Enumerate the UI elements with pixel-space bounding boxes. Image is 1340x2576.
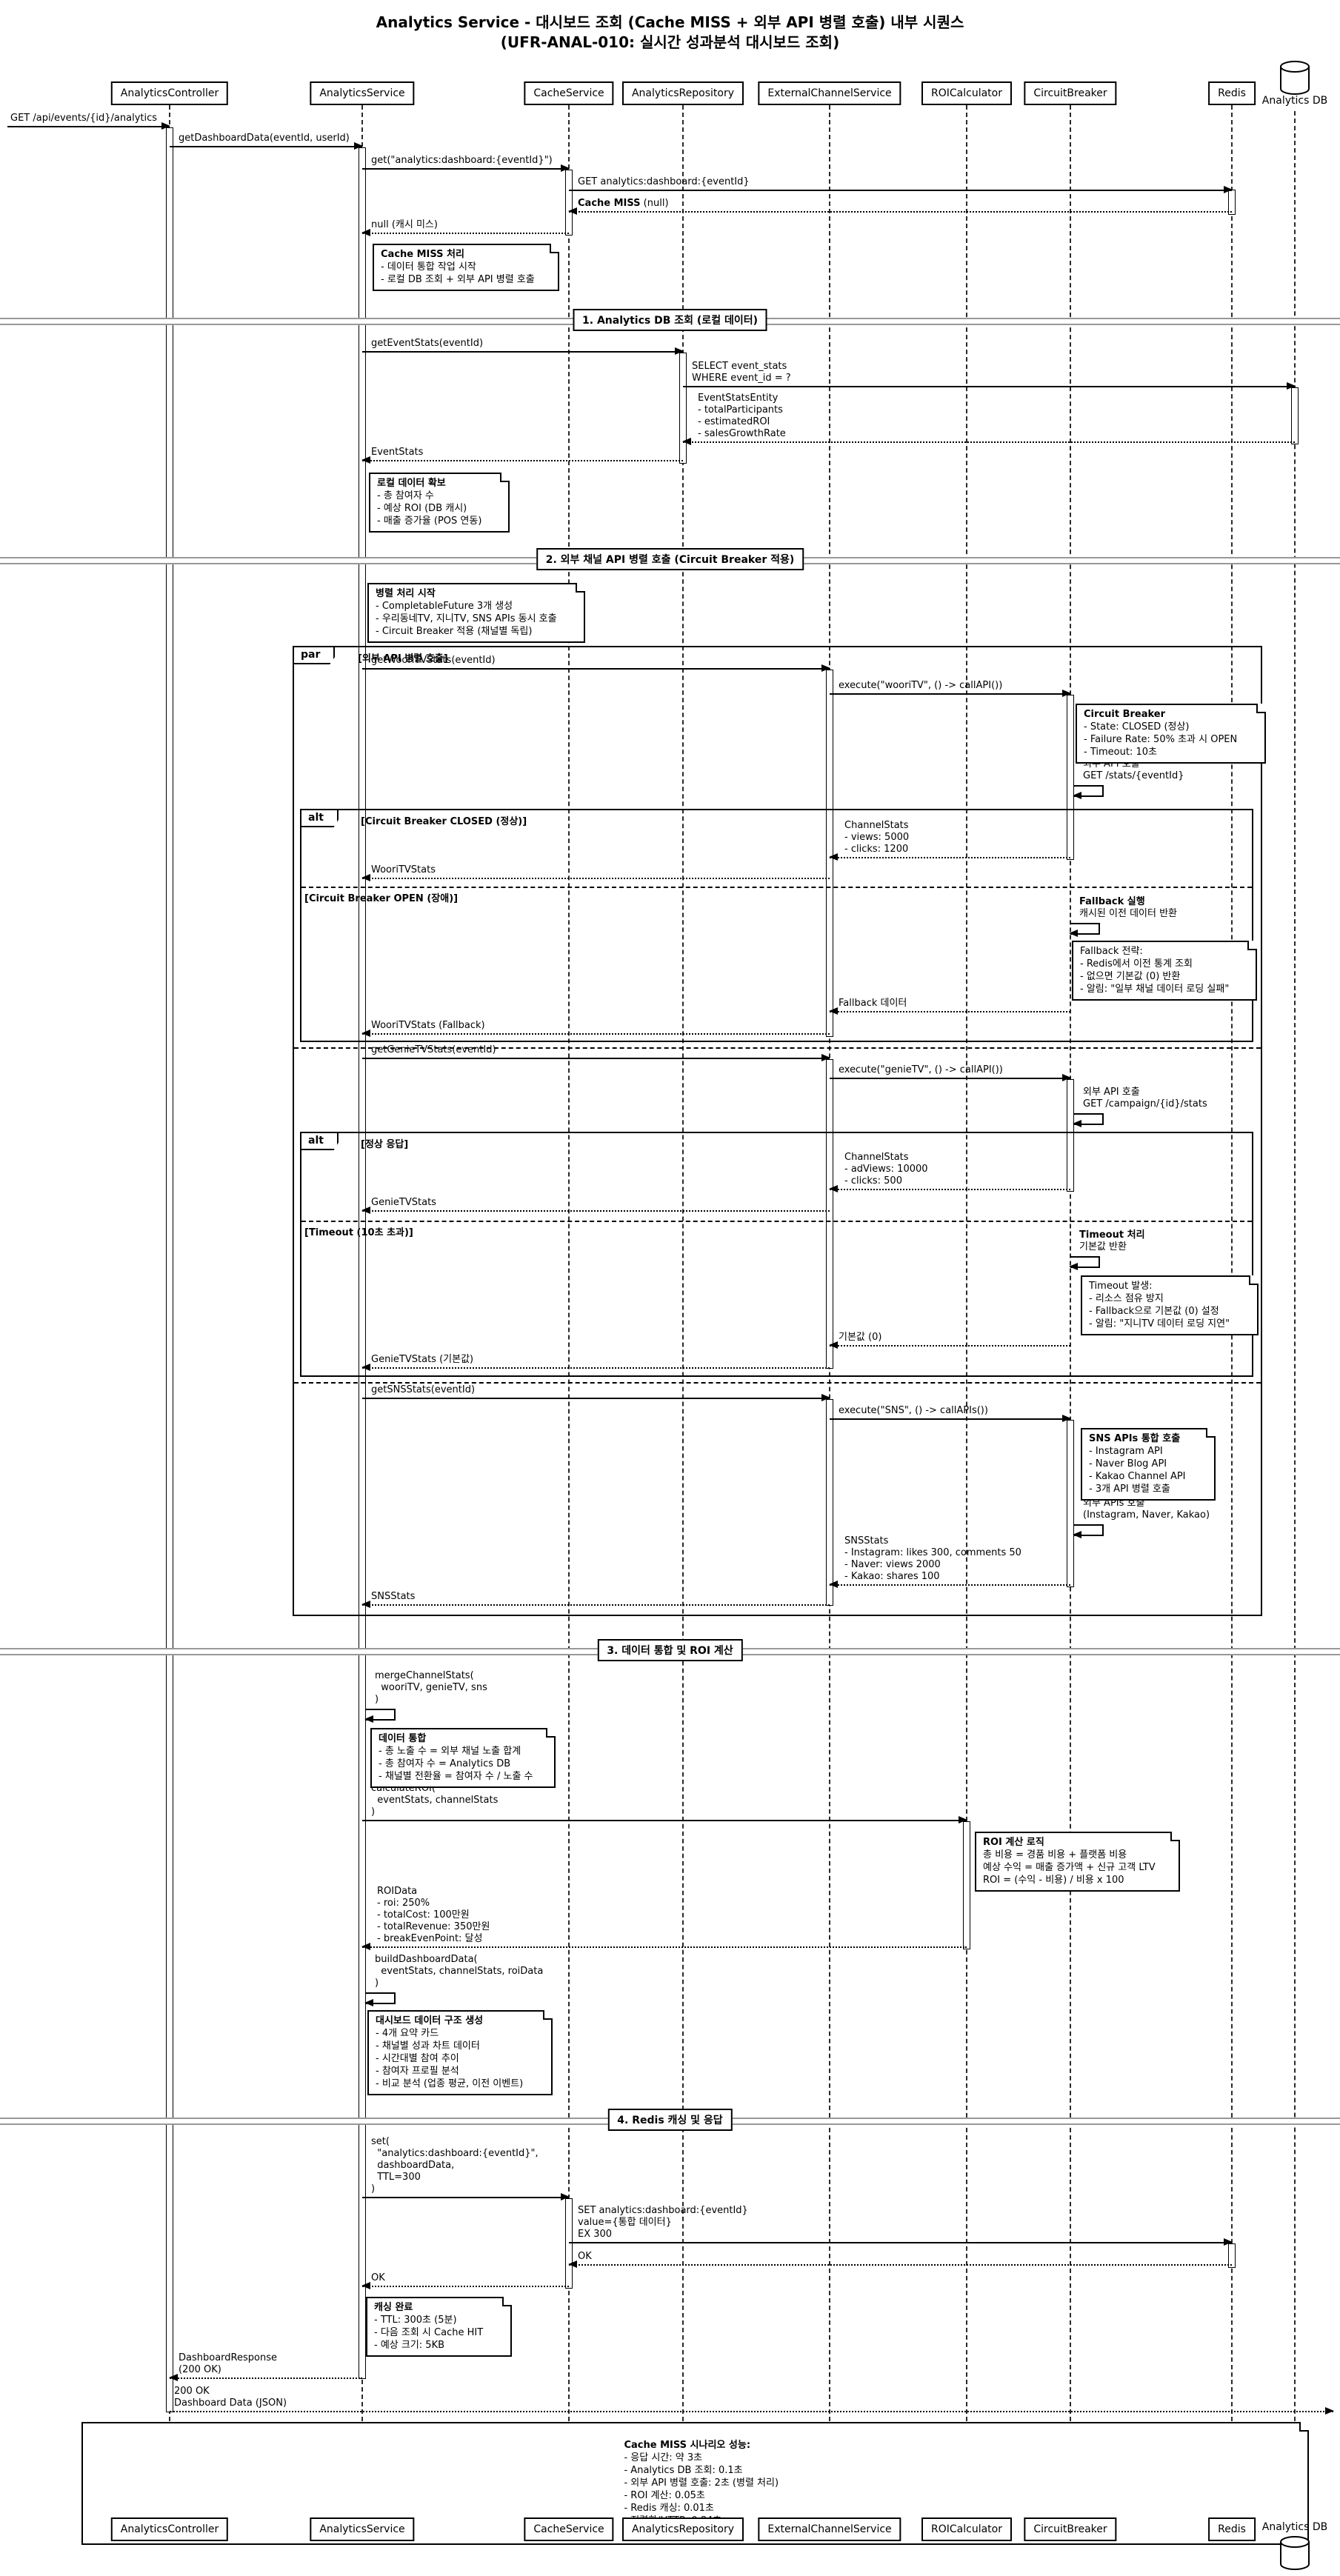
diagram-title-line1: Analytics Service - 대시보드 조회 (Cache MISS … <box>0 10 1340 32</box>
sequence-diagram: Analytics Service - 대시보드 조회 (Cache MISS … <box>0 0 1340 2576</box>
note-data-merge: 데이터 통합- 총 노출 수 = 외부 채널 노출 합계- 총 참여자 수 = … <box>370 1728 556 1788</box>
participant-analyticsrepository-top: AnalyticsRepository <box>622 81 744 105</box>
activation-cache-2 <box>565 2198 573 2289</box>
note-dashboard-structure: 대시보드 데이터 구조 생성- 4개 요약 카드- 채널별 성과 차트 데이터-… <box>367 2010 553 2095</box>
diagram-title-line2: (UFR-ANAL-010: 실시간 성과분석 대시보드 조회) <box>0 30 1340 52</box>
lifeline-analyticsdb <box>1294 111 1296 2517</box>
note-local-data-acquired: 로컬 데이터 확보- 총 참여자 수- 예상 ROI (DB 캐시)- 매출 증… <box>369 473 510 533</box>
participant-analyticscontroller-bottom: AnalyticsController <box>111 2517 228 2541</box>
database-icon <box>1278 61 1312 95</box>
activation-roicalculator <box>963 1821 970 1949</box>
note-roi-calculation-logic: ROI 계산 로직총 비용 = 경품 비용 + 플랫폼 비용예상 수익 = 매출… <box>975 1832 1180 1892</box>
participant-cacheservice-bottom: CacheService <box>524 2517 613 2541</box>
alt-else-separator: [Timeout (10초 초과)] <box>301 1221 1252 1222</box>
activation-repository <box>679 353 687 464</box>
note-caching-complete: 캐싱 완료- TTL: 300초 (5분)- 다음 조회 시 Cache HIT… <box>366 2297 512 2357</box>
alt-fragment-circuit-breaker: alt [Circuit Breaker CLOSED (정상)] [Circu… <box>300 809 1253 1042</box>
activation-cache-1 <box>565 170 573 236</box>
alt-else-condition: [Timeout (10초 초과)] <box>304 1224 413 1238</box>
section-divider-1-label: 1. Analytics DB 조회 (로컬 데이터) <box>573 309 767 331</box>
participant-externalchannelservice-bottom: ExternalChannelService <box>758 2517 901 2541</box>
section-divider-3-label: 3. 데이터 통합 및 ROI 계산 <box>597 1639 742 1661</box>
note-fallback-strategy: Fallback 전략:- Redis에서 이전 통계 조회- 없으면 기본값 … <box>1072 941 1257 1001</box>
par-separator-1 <box>294 1047 1261 1049</box>
note-circuit-breaker-state: Circuit Breaker- State: CLOSED (정상)- Fai… <box>1076 704 1266 764</box>
note-timeout-occurred: Timeout 발생:- 리소스 점유 방지- Fallback으로 기본값 (… <box>1081 1275 1259 1335</box>
participant-roicalculator-bottom: ROICalculator <box>921 2517 1012 2541</box>
note-parallel-start: 병렬 처리 시작- CompletableFuture 3개 생성- 우리동네T… <box>367 583 585 643</box>
participant-redis-top: Redis <box>1208 81 1256 105</box>
participant-analyticsservice-bottom: AnalyticsService <box>310 2517 414 2541</box>
par-separator-2 <box>294 1382 1261 1384</box>
alt-keyword: alt <box>301 1133 339 1150</box>
participant-externalchannelservice-top: ExternalChannelService <box>758 81 901 105</box>
alt-else-separator: [Circuit Breaker OPEN (장애)] <box>301 887 1252 888</box>
note-sns-apis-call: SNS APIs 통합 호출- Instagram API- Naver Blo… <box>1081 1428 1216 1501</box>
participant-redis-bottom: Redis <box>1208 2517 1256 2541</box>
participant-analyticsdb-bottom: Analytics DB <box>1262 2521 1327 2533</box>
note-cache-miss-handling: Cache MISS 처리- 데이터 통합 작업 시작- 로컬 DB 조회 + … <box>373 244 559 291</box>
self-message-merge-channel-stats: mergeChannelStats( wooriTV, genieTV, sns… <box>366 1709 396 1721</box>
participant-analyticsrepository-bottom: AnalyticsRepository <box>622 2517 744 2541</box>
alt-fragment-timeout: alt [정상 응답] [Timeout (10초 초과)] <box>300 1132 1253 1377</box>
section-divider-2-label: 2. 외부 채널 API 병렬 호출 (Circuit Breaker 적용) <box>536 548 804 570</box>
participant-analyticsdb-top: Analytics DB <box>1262 95 1327 107</box>
alt-condition: [Circuit Breaker CLOSED (정상)] <box>361 813 527 827</box>
activation-analyticsdb <box>1291 387 1299 444</box>
database-icon <box>1278 2536 1312 2570</box>
participant-roicalculator-top: ROICalculator <box>921 81 1012 105</box>
participant-analyticsservice-top: AnalyticsService <box>310 81 414 105</box>
activation-controller <box>166 127 173 2412</box>
par-condition: [외부 API 병렬 호출] <box>358 650 448 664</box>
participant-cacheservice-top: CacheService <box>524 81 613 105</box>
par-keyword: par <box>294 647 335 664</box>
participant-analyticscontroller-top: AnalyticsController <box>111 81 228 105</box>
alt-else-condition: [Circuit Breaker OPEN (장애)] <box>304 890 458 904</box>
alt-condition: [정상 응답] <box>361 1136 408 1150</box>
participant-circuitbreaker-bottom: CircuitBreaker <box>1024 2517 1116 2541</box>
alt-keyword: alt <box>301 810 339 827</box>
section-divider-4-label: 4. Redis 캐싱 및 응답 <box>607 2109 732 2131</box>
self-message-build-dashboard-data: buildDashboardData( eventStats, channelS… <box>366 1992 396 2004</box>
participant-circuitbreaker-top: CircuitBreaker <box>1024 81 1116 105</box>
